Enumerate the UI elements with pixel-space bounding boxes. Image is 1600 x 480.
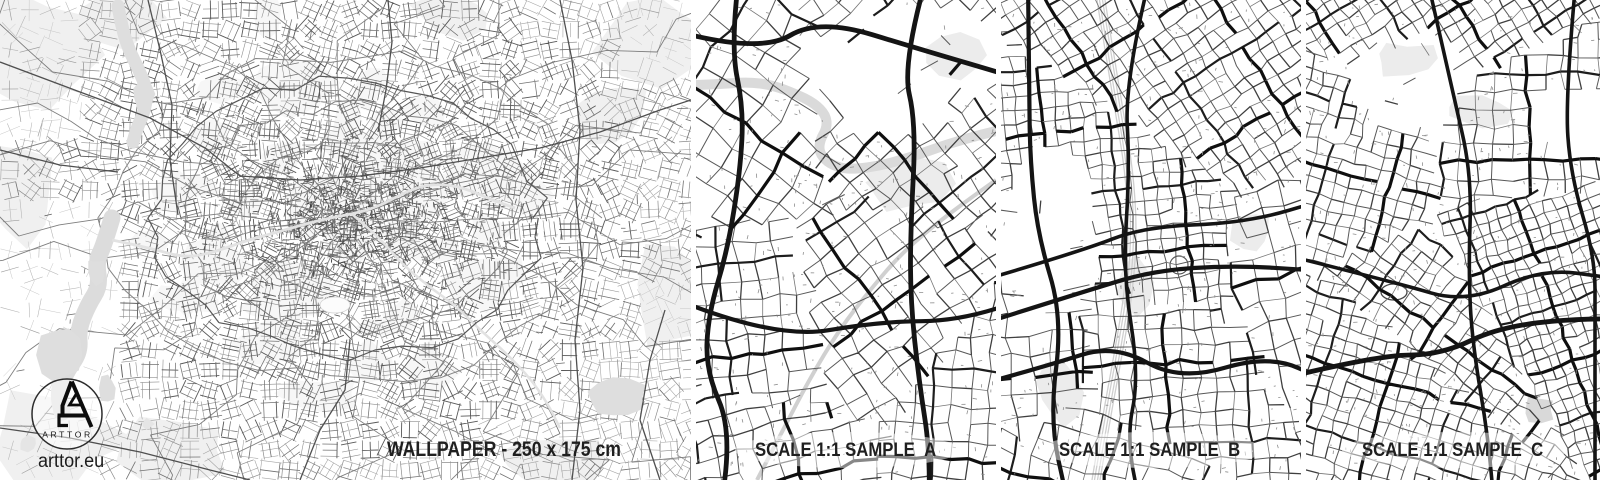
svg-text:ARTTOR: ARTTOR (42, 430, 93, 440)
